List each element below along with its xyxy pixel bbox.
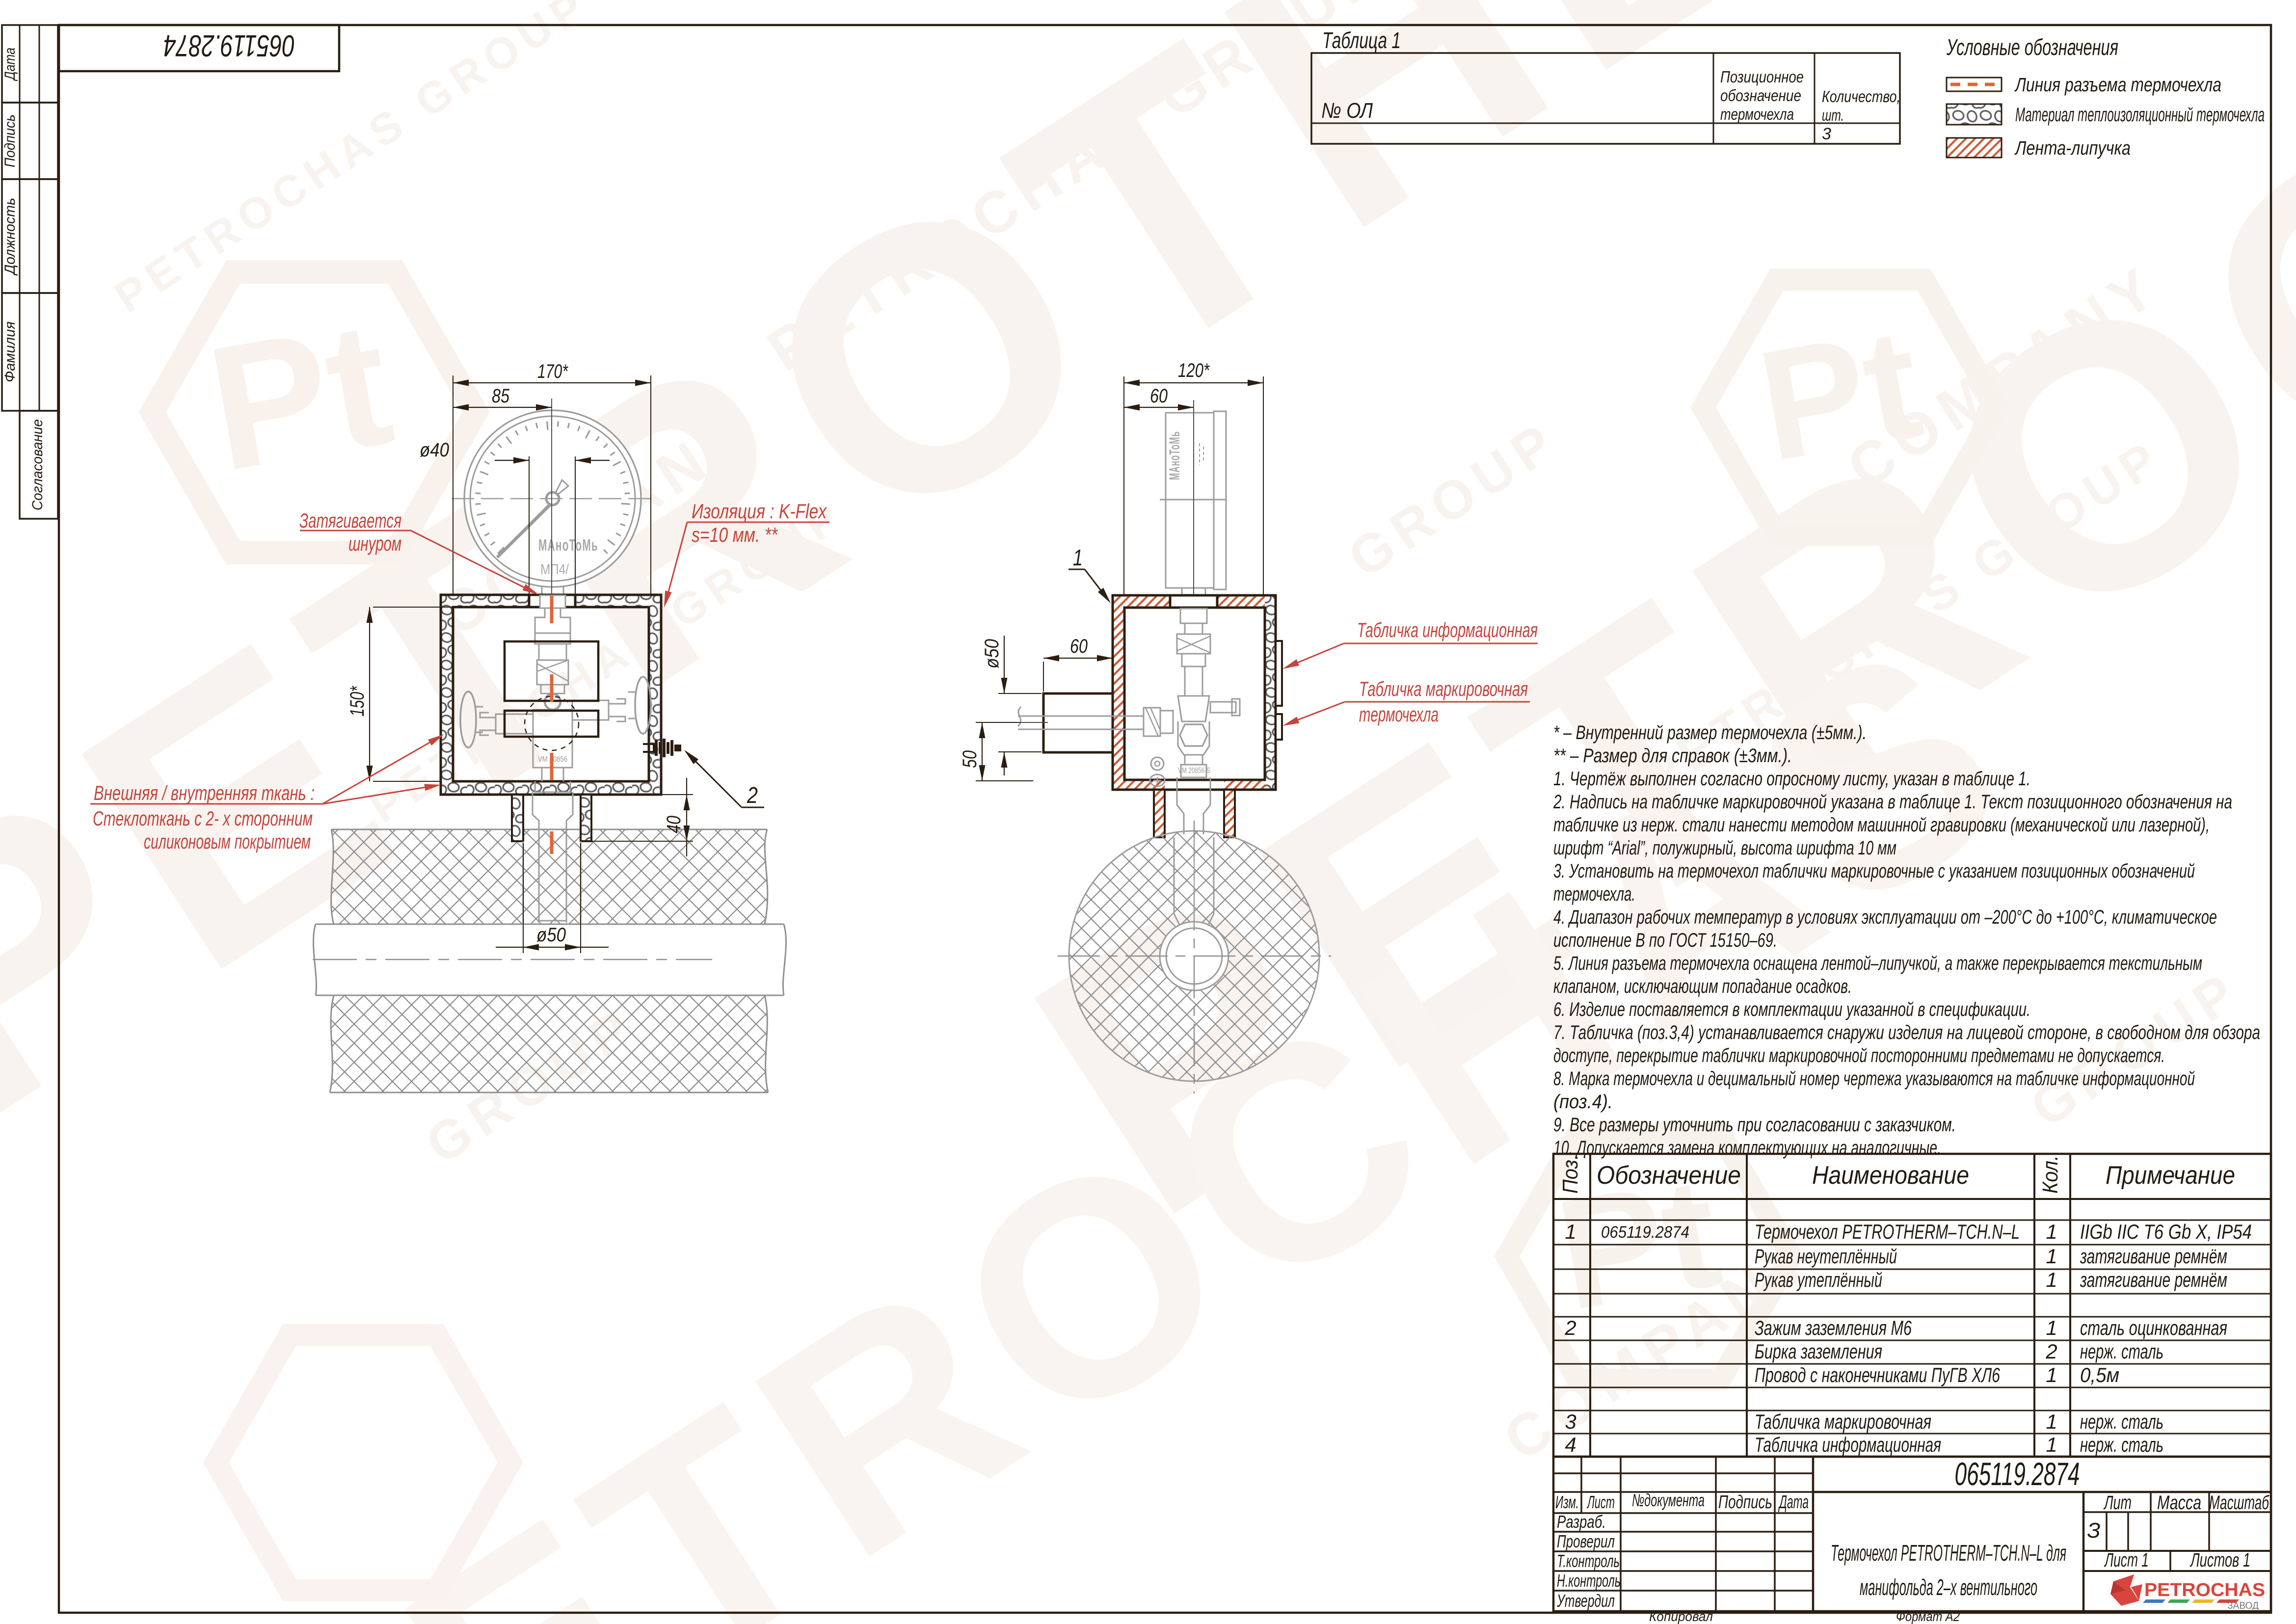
- svg-text:170*: 170*: [537, 361, 568, 382]
- svg-text:PETROCHAS: PETROCHAS: [2144, 1580, 2265, 1600]
- svg-text:ø40: ø40: [420, 439, 449, 461]
- svg-text:Термочехол PETROTHERM–TCH.N–L: Термочехол PETROTHERM–TCH.N–L: [1755, 1220, 2020, 1243]
- svg-text:Обозначение: Обозначение: [1597, 1161, 1741, 1190]
- svg-text:Pt: Pt: [1747, 294, 1932, 494]
- svg-text:нерж. сталь: нерж. сталь: [2080, 1433, 2163, 1456]
- svg-text:6. Изделие поставляется в комп: 6. Изделие поставляется в комплектации у…: [1553, 999, 2030, 1020]
- svg-text:065119.2874: 065119.2874: [1601, 1223, 1689, 1242]
- svg-text:доступе, перекрытие таблички м: доступе, перекрытие таблички маркировочн…: [1553, 1045, 2165, 1066]
- svg-text:4: 4: [1565, 1433, 1576, 1456]
- svg-text:Должность: Должность: [2, 198, 18, 276]
- svg-text:1. Чертёж выполнен согласно оп: 1. Чертёж выполнен согласно опросному ли…: [1553, 768, 2030, 790]
- svg-text:Табличка маркировочная: Табличка маркировочная: [1755, 1410, 1931, 1433]
- svg-text:нерж. сталь: нерж. сталь: [2080, 1340, 2163, 1363]
- svg-text:60: 60: [1070, 636, 1088, 657]
- svg-text:Копировал: Копировал: [1649, 1609, 1713, 1624]
- svg-text:2. Надпись на табличке маркиро: 2. Надпись на табличке маркировочной ука…: [1553, 791, 2232, 813]
- svg-text:60: 60: [1150, 385, 1168, 407]
- svg-text:150*: 150*: [347, 686, 368, 717]
- svg-text:Зажим заземления М6: Зажим заземления М6: [1755, 1316, 1912, 1339]
- svg-text:манифольда 2–х вентильного: манифольда 2–х вентильного: [1860, 1574, 2037, 1600]
- svg-text:Подпись: Подпись: [2, 114, 18, 167]
- svg-text:065119.2874: 065119.2874: [1955, 1456, 2080, 1492]
- svg-text:Масса: Масса: [2157, 1492, 2201, 1514]
- svg-text:исполнение В по ГОСТ 15150–69.: исполнение В по ГОСТ 15150–69.: [1553, 930, 1777, 951]
- svg-text:(поз.4).: (поз.4).: [1553, 1091, 1613, 1113]
- svg-text:ø50: ø50: [536, 924, 566, 946]
- svg-text:7. Табличка (поз.3,4) устанавл: 7. Табличка (поз.3,4) устанавливается сн…: [1553, 1022, 2260, 1043]
- svg-text:термочехла.: термочехла.: [1553, 883, 1635, 905]
- svg-text:Материал теплоизоляционный тер: Материал теплоизоляционный термочехла: [2015, 104, 2265, 126]
- svg-text:120*: 120*: [1178, 360, 1210, 381]
- svg-text:Формат А2: Формат А2: [1896, 1609, 1960, 1624]
- svg-text:4. Диапазон рабочих температур: 4. Диапазон рабочих температур в условия…: [1553, 906, 2217, 928]
- svg-text:9. Все размеры уточнить при со: 9. Все размеры уточнить при согласовании…: [1553, 1114, 1956, 1136]
- svg-text:40: 40: [663, 816, 685, 833]
- svg-text:0,5м: 0,5м: [2080, 1363, 2119, 1386]
- svg-text:1: 1: [2046, 1268, 2057, 1291]
- svg-text:8. Марка термочехла и децималь: 8. Марка термочехла и децимальный номер …: [1553, 1068, 2195, 1090]
- svg-text:2: 2: [1564, 1316, 1576, 1339]
- svg-text:Внешняя / внутренняя ткань :: Внешняя / внутренняя ткань :: [94, 781, 315, 804]
- svg-text:Листов 1: Листов 1: [2189, 1549, 2250, 1571]
- svg-text:1: 1: [1073, 545, 1083, 570]
- svg-text:1: 1: [1565, 1220, 1576, 1243]
- svg-text:Табличка информационная: Табличка информационная: [1755, 1433, 1941, 1456]
- svg-text:Н.контроль: Н.контроль: [1557, 1571, 1621, 1591]
- svg-text:2: 2: [747, 782, 758, 808]
- svg-text:Табличка информационная: Табличка информационная: [1357, 618, 1538, 641]
- svg-text:Кол.: Кол.: [2038, 1155, 2062, 1194]
- svg-text:Лит: Лит: [2103, 1492, 2132, 1514]
- svg-text:Проверил: Проверил: [1557, 1531, 1615, 1551]
- svg-text:Дата: Дата: [2, 48, 18, 81]
- svg-text:шт.: шт.: [1822, 106, 1844, 124]
- svg-text:3: 3: [1565, 1410, 1576, 1433]
- svg-text:1: 1: [2046, 1363, 2057, 1386]
- svg-text:З: З: [2087, 1518, 2100, 1543]
- svg-text:2: 2: [2045, 1340, 2057, 1363]
- svg-text:затягивание ремнём: затягивание ремнём: [2080, 1268, 2227, 1291]
- svg-text:Изоляция : K-Flex: Изоляция : K-Flex: [692, 500, 828, 523]
- svg-text:IIGb IIC T6 Gb X, IP54: IIGb IIC T6 Gb X, IP54: [2080, 1220, 2252, 1243]
- svg-text:Линия разъема термочехла: Линия разъема термочехла: [2014, 74, 2221, 96]
- svg-text:МП4/: МП4/: [540, 561, 569, 578]
- svg-text:* – Внутренний размер термоче: * – Внутренний размер термочехла (±5мм.)…: [1553, 722, 1867, 744]
- svg-text:№ ОЛ: № ОЛ: [1321, 99, 1373, 123]
- svg-text:Pt: Pt: [196, 283, 404, 508]
- svg-text:Количество,: Количество,: [1822, 87, 1900, 106]
- svg-text:3. Установить на термочехол та: 3. Установить на термочехол таблички мар…: [1553, 860, 2195, 882]
- svg-text:Поз.: Поз.: [1558, 1154, 1582, 1194]
- svg-text:Дата: Дата: [1778, 1492, 1809, 1513]
- svg-text:s=10 мм. **: s=10 мм. **: [692, 523, 778, 546]
- svg-text:Табличка маркировочная: Табличка маркировочная: [1359, 677, 1528, 700]
- svg-text:Бирка заземления: Бирка заземления: [1755, 1340, 1882, 1363]
- svg-text:Фамилия: Фамилия: [2, 321, 18, 382]
- svg-text:Т.контроль: Т.контроль: [1557, 1551, 1620, 1571]
- svg-text:065119.2874: 065119.2874: [163, 28, 295, 62]
- svg-text:ø50: ø50: [981, 639, 1003, 668]
- svg-text:Лист: Лист: [1587, 1492, 1615, 1512]
- svg-text:VM 20856-S: VM 20856-S: [1178, 767, 1210, 775]
- svg-text:Провод с наконечниками ПуГВ ХЛ: Провод с наконечниками ПуГВ ХЛ6: [1755, 1363, 2000, 1386]
- svg-text:термочехла: термочехла: [1720, 105, 1794, 123]
- svg-text:Термочехол PETROTHERM–TCH.N–L: Термочехол PETROTHERM–TCH.N–L для: [1831, 1540, 2066, 1566]
- svg-text:Лента-липучка: Лента-липучка: [2014, 137, 2131, 159]
- svg-text:силиконовым покрытием: силиконовым покрытием: [144, 830, 311, 853]
- svg-text:Подпись: Подпись: [1718, 1492, 1772, 1513]
- svg-text:Рукав неутеплённый: Рукав неутеплённый: [1755, 1245, 1897, 1268]
- svg-text:клапаном, исключающим попадани: клапаном, исключающим попадание осадков.: [1553, 976, 1852, 997]
- svg-text:GROUP: GROUP: [1338, 409, 1570, 589]
- svg-text:Рукав утеплённый: Рукав утеплённый: [1755, 1268, 1882, 1291]
- svg-text:МАноТоМь: МАноТоМь: [538, 536, 598, 554]
- svg-text:ЗАВОД: ЗАВОД: [2227, 1600, 2259, 1611]
- svg-text:Лист 1: Лист 1: [2104, 1549, 2149, 1571]
- svg-text:обозначение: обозначение: [1720, 86, 1801, 105]
- svg-text:1: 1: [2046, 1410, 2057, 1433]
- svg-text:3: 3: [1822, 125, 1831, 143]
- svg-text:50: 50: [959, 750, 981, 768]
- svg-text:Масштаб: Масштаб: [2209, 1492, 2269, 1514]
- svg-text:МАноТоМь: МАноТоМь: [1167, 431, 1183, 480]
- svg-text:Утвердил: Утвердил: [1556, 1591, 1615, 1611]
- svg-text:Изм.: Изм.: [1555, 1492, 1579, 1512]
- svg-text:1: 1: [2046, 1220, 2057, 1243]
- svg-text:5. Линия разъема термочехла ос: 5. Линия разъема термочехла оснащена лен…: [1553, 953, 2202, 974]
- svg-text:затягивание ремнём: затягивание ремнём: [2080, 1245, 2227, 1268]
- svg-text:Позиционное: Позиционное: [1720, 68, 1804, 86]
- svg-text:Наименование: Наименование: [1812, 1161, 1969, 1190]
- svg-text:1: 1: [2046, 1245, 2057, 1268]
- svg-text:1: 1: [2046, 1433, 2057, 1456]
- svg-text:** – Размер для справок (±3мм.: ** – Размер для справок (±3мм.).: [1553, 745, 1792, 767]
- svg-text:Затягивается: Затягивается: [299, 509, 401, 532]
- svg-text:№документа: №документа: [1632, 1490, 1705, 1510]
- svg-text:1: 1: [2046, 1316, 2057, 1339]
- svg-text:нерж. сталь: нерж. сталь: [2080, 1410, 2163, 1433]
- svg-text:табличке из нерж. стали нанест: табличке из нерж. стали нанести методом …: [1553, 814, 2210, 836]
- svg-text:Таблица 1: Таблица 1: [1322, 27, 1401, 53]
- svg-text:шнуром: шнуром: [348, 532, 401, 555]
- svg-text:Согласование: Согласование: [29, 419, 46, 510]
- svg-text:Разраб.: Разраб.: [1557, 1512, 1606, 1532]
- svg-text:шрифт “Arial”, полужирный, выс: шрифт “Arial”, полужирный, высота шрифта…: [1553, 837, 1896, 859]
- svg-text:85: 85: [492, 385, 510, 407]
- svg-text:Условные обозначения: Условные обозначения: [1946, 34, 2118, 60]
- svg-text:Стеклоткань с 2- х сторонним: Стеклоткань с 2- х сторонним: [93, 807, 313, 830]
- svg-text:Примечание: Примечание: [2106, 1161, 2235, 1190]
- svg-text:термочехла: термочехла: [1359, 703, 1439, 726]
- svg-text:сталь оцинкованная: сталь оцинкованная: [2080, 1316, 2227, 1339]
